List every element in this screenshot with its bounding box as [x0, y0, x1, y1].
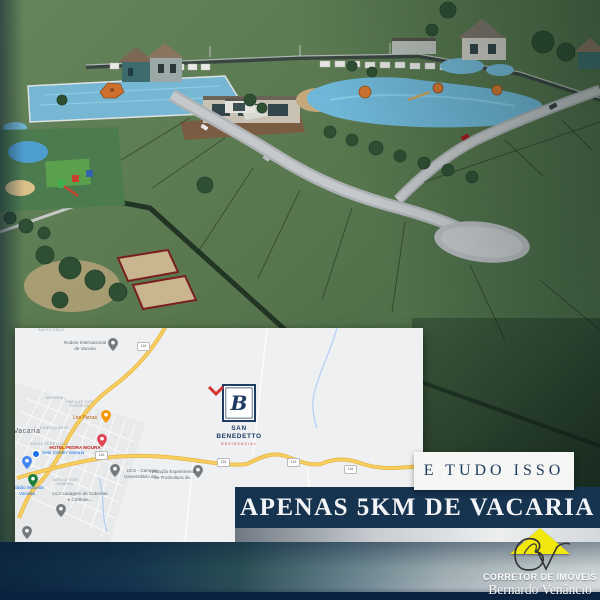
- bv-monogram-icon: [510, 534, 572, 574]
- playground: [0, 127, 125, 212]
- broker-logo: CORRETOR DE IMÓVEIS Bernardo Venâncio: [478, 526, 600, 598]
- tagline-main-banner: APENAS 5KM DE VACARIA: [235, 487, 600, 528]
- development-subtitle: RESIDENCIAL: [207, 442, 271, 446]
- map-pin-blue-icon: [22, 456, 32, 469]
- map-pin-gray-icon: [108, 338, 118, 351]
- monogram-icon: B: [231, 391, 248, 415]
- ad-poster: 116 116 116 116 116 SANTA CRUZ Rodeio In…: [0, 0, 600, 600]
- map-label-neighborhood: JARDIM DOS PAMPAS: [45, 478, 85, 487]
- map-label-business: Sesi Center Vacaria: [42, 451, 96, 457]
- map-label-poi: Rodeio Internacional de Vacaria: [63, 340, 107, 351]
- broker-name: Bernardo Venâncio: [478, 582, 600, 598]
- map-label-poi: Estação Experimental de Fruticultura de.…: [151, 469, 197, 480]
- map-pin-gray-icon: [110, 464, 120, 477]
- development-name-line2: BENEDETTO: [207, 433, 271, 441]
- map-label-neighborhood: PARQUE DOS RODEIOS: [63, 400, 97, 409]
- route-shield: 116: [137, 342, 150, 351]
- map-label-stadium: Estádio Macedo Vacaria: [15, 486, 47, 498]
- san-benedetto-marker: B SAN BENEDETTO RESIDENCIAL: [207, 384, 271, 446]
- map-label-hotel: HOTEL PEDRA MOURA: [49, 445, 101, 451]
- map-pin-restaurant-icon: [101, 410, 111, 423]
- development-name-line1: SAN: [207, 425, 271, 433]
- route-shield: 116: [95, 451, 108, 460]
- tagline-top-banner: E TUDO ISSO: [414, 452, 574, 490]
- route-shield: 116: [217, 458, 230, 467]
- location-chevron-icon: [207, 386, 225, 396]
- map-label-city: Vacaria: [15, 428, 45, 437]
- san-benedetto-logo: B: [222, 384, 256, 422]
- route-shield: 116: [344, 465, 357, 474]
- map-pin-business-icon: [32, 450, 40, 458]
- map-label-poi: LCA Lavagem de Cobertas e Cortinas...: [51, 491, 109, 502]
- map-label-restaurant: Les Pizzas: [69, 415, 101, 421]
- route-shield: 116: [287, 458, 300, 467]
- map-pin-gray-icon: [56, 504, 66, 517]
- map-pin-gray-icon: [22, 526, 32, 539]
- map-label-neighborhood: SANTA CRUZ: [31, 328, 71, 332]
